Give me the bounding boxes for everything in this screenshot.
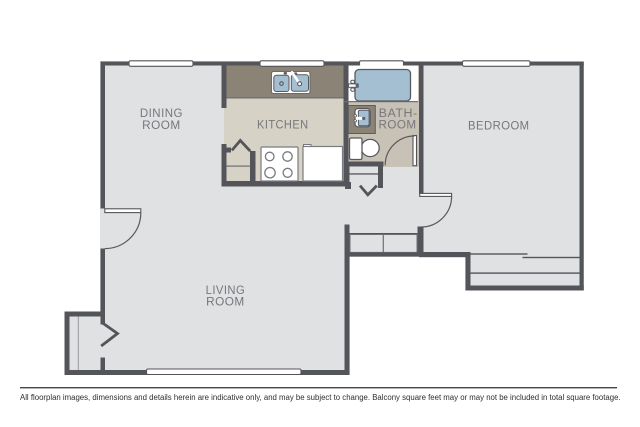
svg-text:ROOM: ROOM	[142, 118, 181, 132]
svg-text:ROOM: ROOM	[379, 118, 417, 132]
svg-text:All floorplan images, dimensio: All floorplan images, dimensions and det…	[20, 393, 621, 402]
svg-text:ROOM: ROOM	[206, 294, 245, 308]
svg-text:BEDROOM: BEDROOM	[468, 119, 530, 133]
svg-text:KITCHEN: KITCHEN	[257, 118, 309, 132]
